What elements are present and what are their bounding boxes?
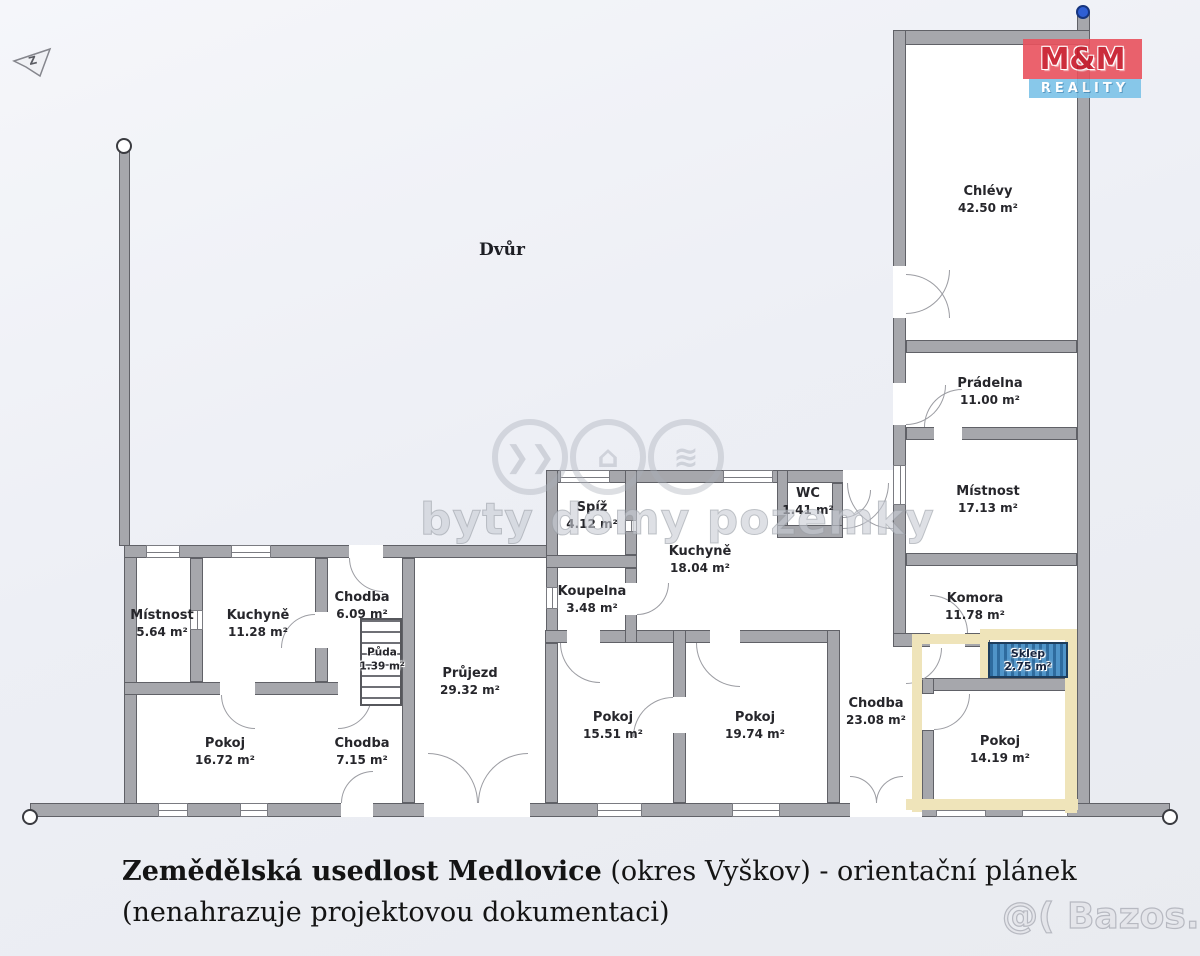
room-label-kuchyne-18: Kuchyně 18.04 m²	[669, 544, 732, 576]
caption: Zemědělská usedlost Medlovice (okres Vyš…	[122, 856, 1077, 928]
window	[158, 803, 188, 817]
room-label-pokoj-16: Pokoj 16.72 m²	[195, 736, 255, 768]
door-opening	[843, 470, 893, 483]
room-label-kuchyne-11: Kuchyně 11.28 m²	[227, 608, 290, 640]
highlight-outline	[980, 629, 1077, 640]
watermark-house-icon: ⌂	[570, 419, 646, 495]
room-label-chodba-23: Chodba 23.08 m²	[846, 696, 906, 728]
door-opening	[934, 427, 962, 440]
bazos-watermark: @( Bazos.cz	[1002, 896, 1200, 937]
mm-logo-top: M&M	[1023, 39, 1142, 79]
wall	[124, 545, 558, 558]
door-opening	[893, 383, 906, 425]
caption-title-bold: Zemědělská usedlost Medlovice	[122, 856, 602, 887]
window	[597, 803, 642, 817]
wall	[124, 545, 137, 817]
door-opening	[625, 583, 637, 615]
wall	[893, 30, 906, 647]
wall	[546, 555, 637, 568]
wall	[906, 553, 1077, 566]
room-label-pokoj-19: Pokoj 19.74 m²	[725, 710, 785, 742]
room-label-sklep: Sklep 2.75 m²	[1004, 647, 1051, 673]
mm-reality-logo: M&M REALITY	[1023, 39, 1142, 98]
room-label-chodba-6: Chodba 6.09 m²	[334, 590, 389, 622]
room-label-komora: Komora 11.78 m²	[945, 591, 1005, 623]
window	[231, 545, 271, 558]
highlight-outline	[912, 634, 987, 644]
boundary-wall	[119, 146, 130, 546]
wall	[1077, 12, 1090, 812]
room-label-chlevy: Chlévy 42.50 m²	[958, 184, 1018, 216]
room-label-pradelna: Prádelna 11.00 m²	[957, 376, 1022, 408]
door-opening	[850, 803, 903, 817]
boundary-marker-blue	[1076, 5, 1090, 19]
north-arrow-icon: Z	[10, 45, 54, 83]
room-label-pokoj-15: Pokoj 15.51 m²	[583, 710, 643, 742]
room-label-koupelna: Koupelna 3.48 m²	[558, 584, 627, 616]
window	[732, 803, 780, 817]
door-opening	[349, 545, 383, 558]
wall	[906, 340, 1077, 353]
wall	[545, 643, 558, 803]
boundary-marker	[1162, 809, 1178, 825]
highlight-outline	[906, 799, 1078, 810]
door-opening	[710, 630, 740, 643]
door-opening	[341, 803, 373, 817]
door-opening	[315, 612, 328, 648]
window	[723, 470, 773, 483]
watermark-land-icon: ≋	[648, 419, 724, 495]
boundary-marker	[116, 138, 132, 154]
boundary-marker	[22, 809, 38, 825]
floor-plan: Sklep 2.75 m² Chlévy 42.50 m² Prádelna 1…	[0, 0, 1200, 956]
wall	[402, 558, 415, 803]
door-opening	[567, 630, 600, 643]
room-label-chodba-7: Chodba 7.15 m²	[334, 736, 389, 768]
window	[240, 803, 268, 817]
courtyard-label: Dvůr	[479, 240, 525, 260]
mm-logo-bottom: REALITY	[1029, 79, 1141, 98]
caption-title-rest: (okres Vyškov) - orientační plánek	[602, 856, 1077, 887]
window	[146, 545, 180, 558]
room-label-pokoj-14: Pokoj 14.19 m²	[970, 734, 1030, 766]
door-opening	[220, 682, 255, 695]
watermark-waves-icon: ❯❯	[492, 419, 568, 495]
room-label-prujezd: Průjezd 29.32 m²	[440, 666, 500, 698]
door-opening	[893, 266, 906, 318]
wall	[906, 427, 1077, 440]
room-label-mistnost-5: Místnost 5.64 m²	[130, 608, 193, 640]
caption-line2: (nenahrazuje projektovou dokumentaci)	[122, 897, 1077, 928]
highlight-outline	[912, 634, 922, 812]
gate-opening	[424, 803, 530, 817]
wall	[827, 630, 840, 803]
room-label-mistnost-17: Místnost 17.13 m²	[956, 484, 1019, 516]
room-label-puda: Půda 1.39 m²	[359, 646, 404, 673]
watermark-text: byty domy pozemky	[420, 494, 890, 545]
wall	[930, 678, 1077, 691]
wall	[922, 678, 934, 694]
door-opening	[673, 697, 686, 733]
window	[546, 587, 558, 609]
